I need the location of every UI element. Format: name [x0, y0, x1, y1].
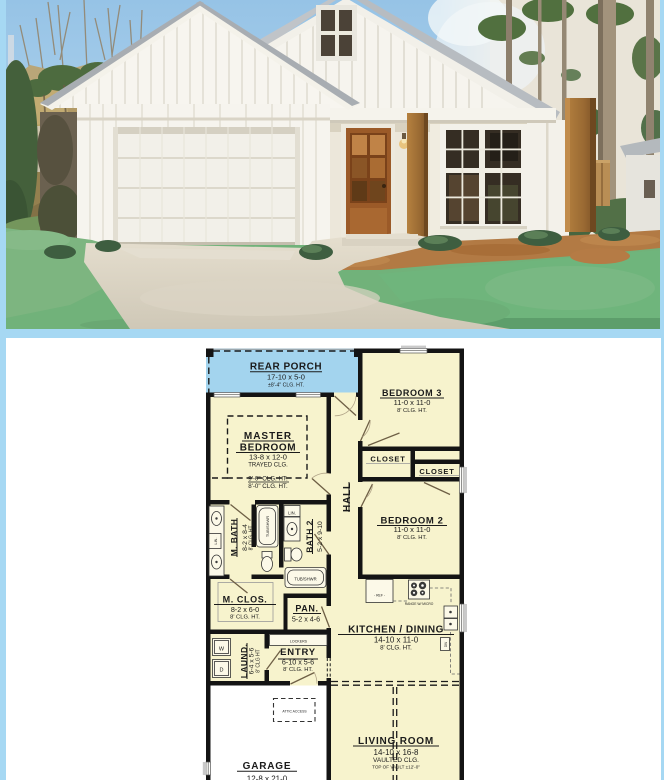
svg-text:CLOSET: CLOSET — [419, 467, 454, 476]
svg-text:11-0 x 11-0: 11-0 x 11-0 — [394, 398, 431, 407]
svg-text:LOCKERS: LOCKERS — [290, 640, 308, 644]
svg-text:D: D — [220, 668, 224, 674]
svg-text:13-8 x 12-0: 13-8 x 12-0 — [249, 453, 287, 462]
svg-text:8' CLG. HT.: 8' CLG. HT. — [230, 615, 260, 621]
svg-text:11-0 x 11-0: 11-0 x 11-0 — [394, 525, 431, 534]
svg-text:17-10 x 5-0: 17-10 x 5-0 — [267, 373, 305, 382]
svg-text:DW: DW — [444, 642, 448, 647]
svg-text:8' CLG. HT.: 8' CLG. HT. — [380, 645, 412, 652]
svg-text:TOP OF VAULT ±12'-0": TOP OF VAULT ±12'-0" — [372, 765, 420, 770]
svg-text:PAN.: PAN. — [295, 604, 318, 614]
svg-text:MASTER: MASTER — [244, 431, 292, 442]
svg-text:12-8 x 21-0: 12-8 x 21-0 — [247, 774, 288, 780]
svg-text:M. CLOS.: M. CLOS. — [223, 595, 268, 605]
svg-text:14-10 x 16-8: 14-10 x 16-8 — [374, 748, 419, 757]
svg-text:CLOSET: CLOSET — [370, 455, 405, 464]
svg-text:- REF -: - REF - — [374, 594, 385, 598]
svg-text:8'-0" CLG. HT.: 8'-0" CLG. HT. — [248, 483, 288, 490]
svg-text:8' CLG HT: 8' CLG HT — [256, 649, 262, 672]
svg-text:8' CLG. HT.: 8' CLG. HT. — [397, 535, 427, 541]
svg-text:TRAYED CLG.: TRAYED CLG. — [248, 463, 288, 469]
svg-text:8' CLG. HT.: 8' CLG. HT. — [249, 525, 255, 551]
svg-text:5-2 x 4-6: 5-2 x 4-6 — [292, 615, 320, 624]
svg-text:6-4 x 5-6: 6-4 x 5-6 — [249, 647, 256, 674]
svg-text:HALL: HALL — [342, 482, 353, 512]
svg-text:8-2 x 6-0: 8-2 x 6-0 — [231, 605, 259, 614]
svg-text:RANGE W/ MICRO: RANGE W/ MICRO — [405, 602, 434, 606]
svg-text:ENTRY: ENTRY — [280, 647, 316, 658]
svg-text:TUB/SHWR: TUB/SHWR — [265, 516, 270, 537]
svg-text:9'-0" CLG. HT.: 9'-0" CLG. HT. — [248, 476, 288, 483]
svg-text:ATTIC ACCESS: ATTIC ACCESS — [282, 710, 307, 714]
svg-text:BEDROOM 3: BEDROOM 3 — [382, 388, 442, 398]
svg-text:REAR PORCH: REAR PORCH — [250, 362, 322, 373]
svg-text:LIN.: LIN. — [214, 538, 218, 545]
svg-text:W: W — [219, 647, 225, 653]
svg-text:KITCHEN / DINING: KITCHEN / DINING — [348, 625, 444, 636]
svg-text:14-10 x 11-0: 14-10 x 11-0 — [374, 636, 419, 645]
svg-text:5-2 x 9-10: 5-2 x 9-10 — [317, 521, 324, 552]
svg-text:±8'-4" CLG. HT.: ±8'-4" CLG. HT. — [268, 383, 304, 389]
svg-text:GARAGE: GARAGE — [243, 761, 292, 772]
svg-text:8' CLG. HT.: 8' CLG. HT. — [283, 667, 313, 673]
svg-text:LIVING ROOM: LIVING ROOM — [358, 736, 434, 747]
svg-text:8' CLG. HT.: 8' CLG. HT. — [397, 408, 427, 414]
svg-text:TUB/SHWR: TUB/SHWR — [294, 577, 316, 582]
svg-text:VAULTED CLG.: VAULTED CLG. — [373, 757, 419, 764]
svg-text:LIN.: LIN. — [288, 511, 296, 516]
